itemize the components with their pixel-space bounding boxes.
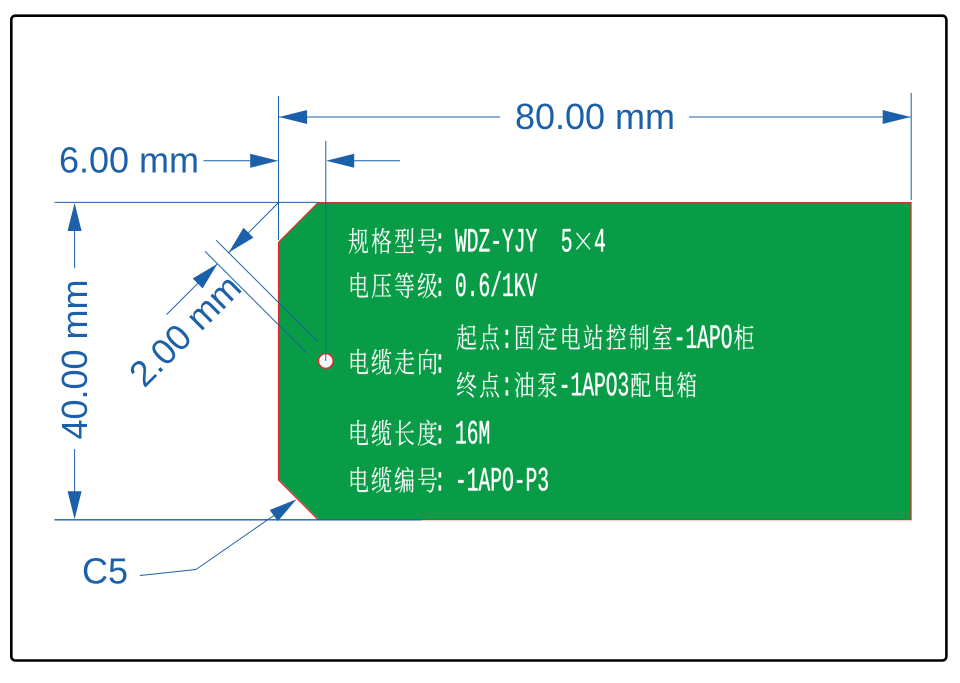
svg-text:40.00 mm: 40.00 mm	[54, 279, 95, 439]
svg-text:C5: C5	[82, 550, 128, 591]
svg-text:80.00 mm: 80.00 mm	[515, 96, 675, 137]
svg-text:6.00 mm: 6.00 mm	[59, 140, 199, 181]
